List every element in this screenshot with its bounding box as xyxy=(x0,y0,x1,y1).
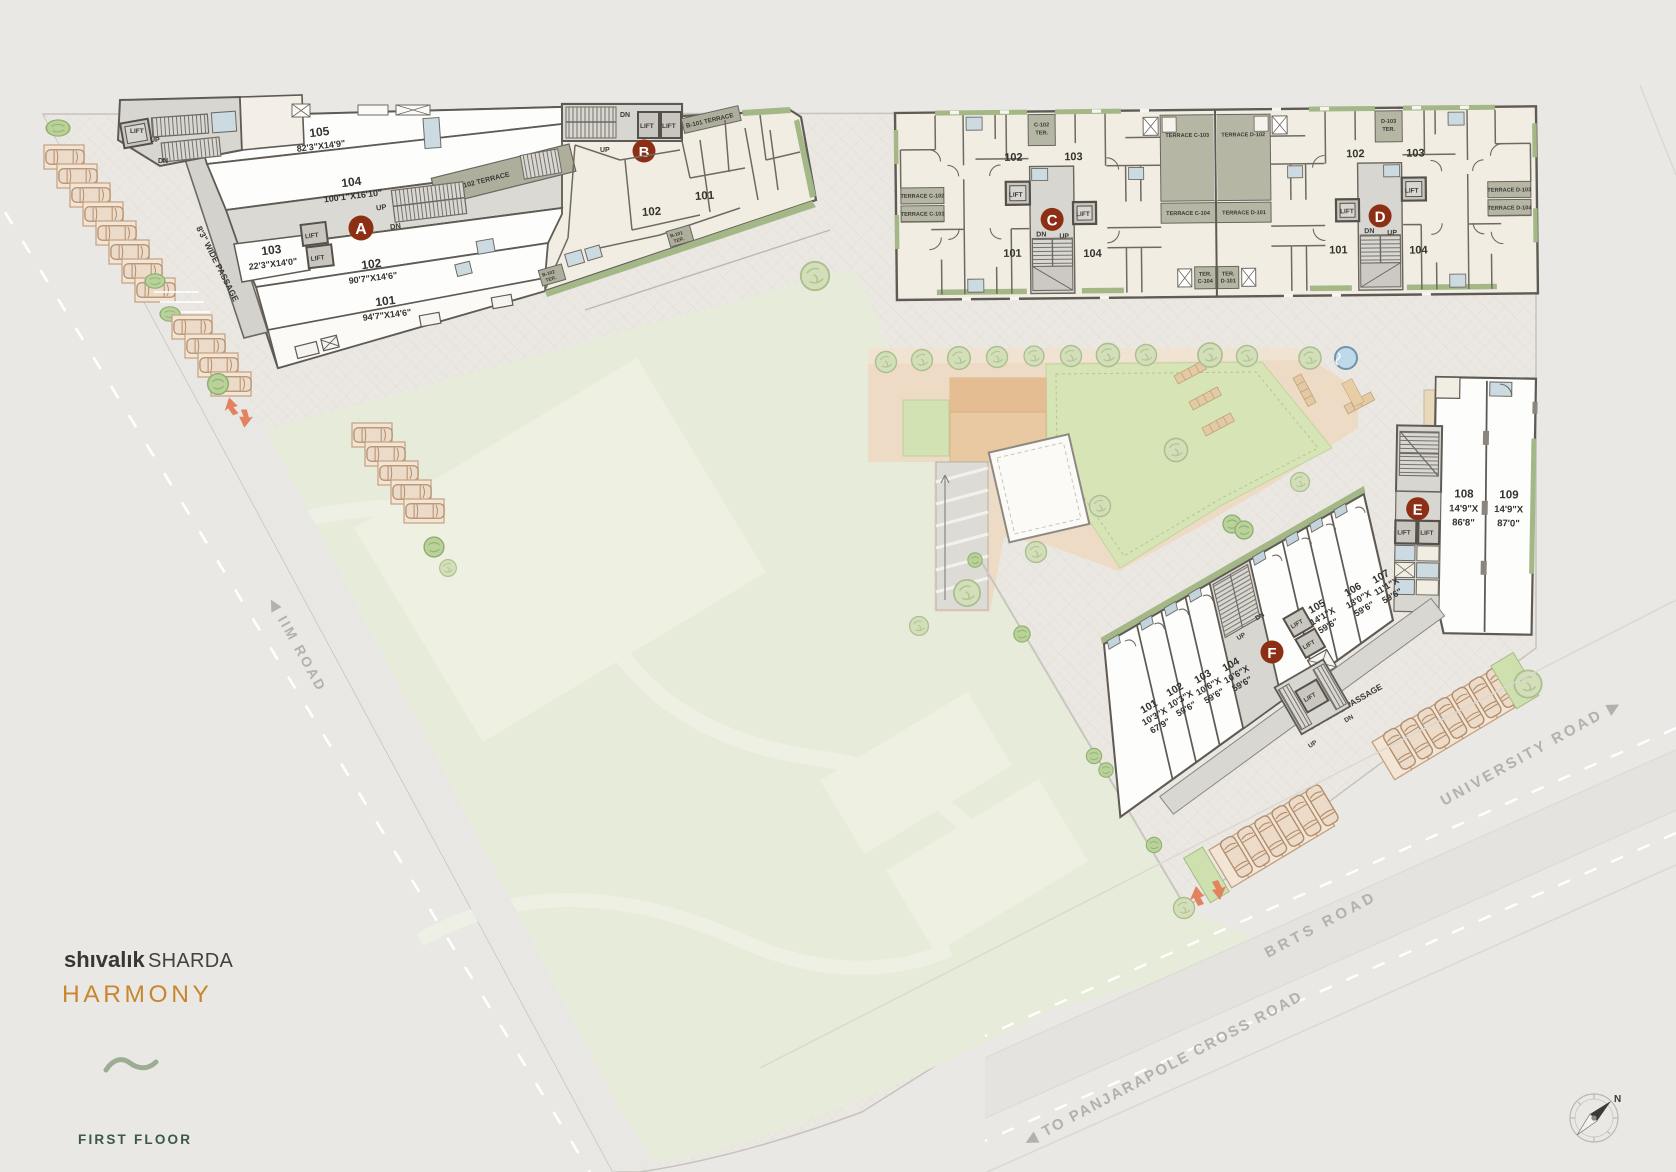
svg-text:104: 104 xyxy=(1409,244,1428,256)
svg-text:UP: UP xyxy=(1387,230,1397,237)
svg-text:HARMONY: HARMONY xyxy=(62,981,212,1008)
svg-text:102: 102 xyxy=(642,206,662,219)
svg-text:shıvalık: shıvalık xyxy=(64,947,145,972)
svg-text:UP: UP xyxy=(600,147,610,154)
svg-text:TERRACE C-104: TERRACE C-104 xyxy=(1166,211,1211,217)
svg-text:TERRACE D-101: TERRACE D-101 xyxy=(1222,210,1266,216)
svg-text:104: 104 xyxy=(340,174,362,190)
svg-text:TERRACE C-101: TERRACE C-101 xyxy=(901,211,945,217)
svg-text:101: 101 xyxy=(1329,244,1347,256)
svg-text:14'9"X: 14'9"X xyxy=(1449,503,1479,515)
svg-text:102: 102 xyxy=(1346,148,1364,160)
svg-text:103: 103 xyxy=(260,242,282,258)
svg-text:D-103: D-103 xyxy=(1381,119,1396,125)
svg-text:103: 103 xyxy=(1406,147,1424,159)
svg-text:101: 101 xyxy=(1003,248,1021,260)
svg-text:D: D xyxy=(1375,209,1386,226)
svg-text:C-102: C-102 xyxy=(1034,122,1049,128)
svg-text:104: 104 xyxy=(1083,248,1102,260)
svg-text:DN: DN xyxy=(620,112,630,119)
svg-text:SHARDA: SHARDA xyxy=(148,950,234,972)
svg-text:TER.: TER. xyxy=(1382,127,1395,133)
svg-text:TERRACE D-104: TERRACE D-104 xyxy=(1488,205,1533,211)
svg-text:TERRACE C-102: TERRACE C-102 xyxy=(900,193,944,199)
svg-text:DN: DN xyxy=(390,221,402,231)
svg-text:102: 102 xyxy=(1004,152,1022,164)
svg-text:C-104: C-104 xyxy=(1198,279,1214,285)
svg-text:TER.: TER. xyxy=(1199,272,1212,278)
svg-text:108: 108 xyxy=(1454,488,1474,500)
svg-text:LIFT: LIFT xyxy=(1420,530,1434,537)
svg-text:87'0": 87'0" xyxy=(1497,518,1520,529)
svg-text:DN: DN xyxy=(1364,228,1374,235)
svg-text:LIFT: LIFT xyxy=(640,123,654,130)
svg-text:LIFT: LIFT xyxy=(662,123,676,130)
svg-text:TER.: TER. xyxy=(1222,271,1235,277)
svg-text:14'9"X: 14'9"X xyxy=(1494,504,1524,516)
svg-text:LIFT: LIFT xyxy=(1340,208,1354,215)
svg-text:D-101: D-101 xyxy=(1221,278,1236,284)
svg-text:UP: UP xyxy=(1059,233,1069,240)
svg-text:LIFT: LIFT xyxy=(1397,529,1411,536)
svg-text:TERRACE D-102: TERRACE D-102 xyxy=(1221,132,1265,138)
svg-text:A: A xyxy=(355,221,367,238)
svg-text:109: 109 xyxy=(1499,489,1518,501)
svg-text:LIFT: LIFT xyxy=(1076,211,1090,218)
svg-text:TER.: TER. xyxy=(1035,130,1048,136)
svg-text:FIRST FLOOR: FIRST FLOOR xyxy=(78,1132,192,1147)
svg-text:LIFT: LIFT xyxy=(1009,192,1023,199)
svg-text:DN: DN xyxy=(158,158,168,165)
svg-text:LIFT: LIFT xyxy=(1405,188,1419,195)
svg-text:86'8": 86'8" xyxy=(1452,517,1475,528)
svg-text:101: 101 xyxy=(374,293,396,309)
svg-text:DN: DN xyxy=(1036,231,1046,238)
svg-text:N: N xyxy=(1614,1094,1621,1105)
svg-text:LIFT: LIFT xyxy=(130,128,144,135)
svg-text:UP: UP xyxy=(150,137,160,144)
svg-text:105: 105 xyxy=(308,124,330,140)
svg-text:C: C xyxy=(1047,212,1058,229)
svg-text:103: 103 xyxy=(1064,151,1082,163)
svg-text:UP: UP xyxy=(376,202,387,212)
svg-text:TERRACE C-103: TERRACE C-103 xyxy=(1165,133,1209,139)
svg-text:B: B xyxy=(639,144,650,161)
svg-text:E: E xyxy=(1413,502,1423,519)
svg-text:F: F xyxy=(1267,645,1276,662)
svg-text:101: 101 xyxy=(695,190,716,203)
svg-text:102: 102 xyxy=(360,256,382,272)
svg-text:TERRACE D-103: TERRACE D-103 xyxy=(1487,187,1531,193)
